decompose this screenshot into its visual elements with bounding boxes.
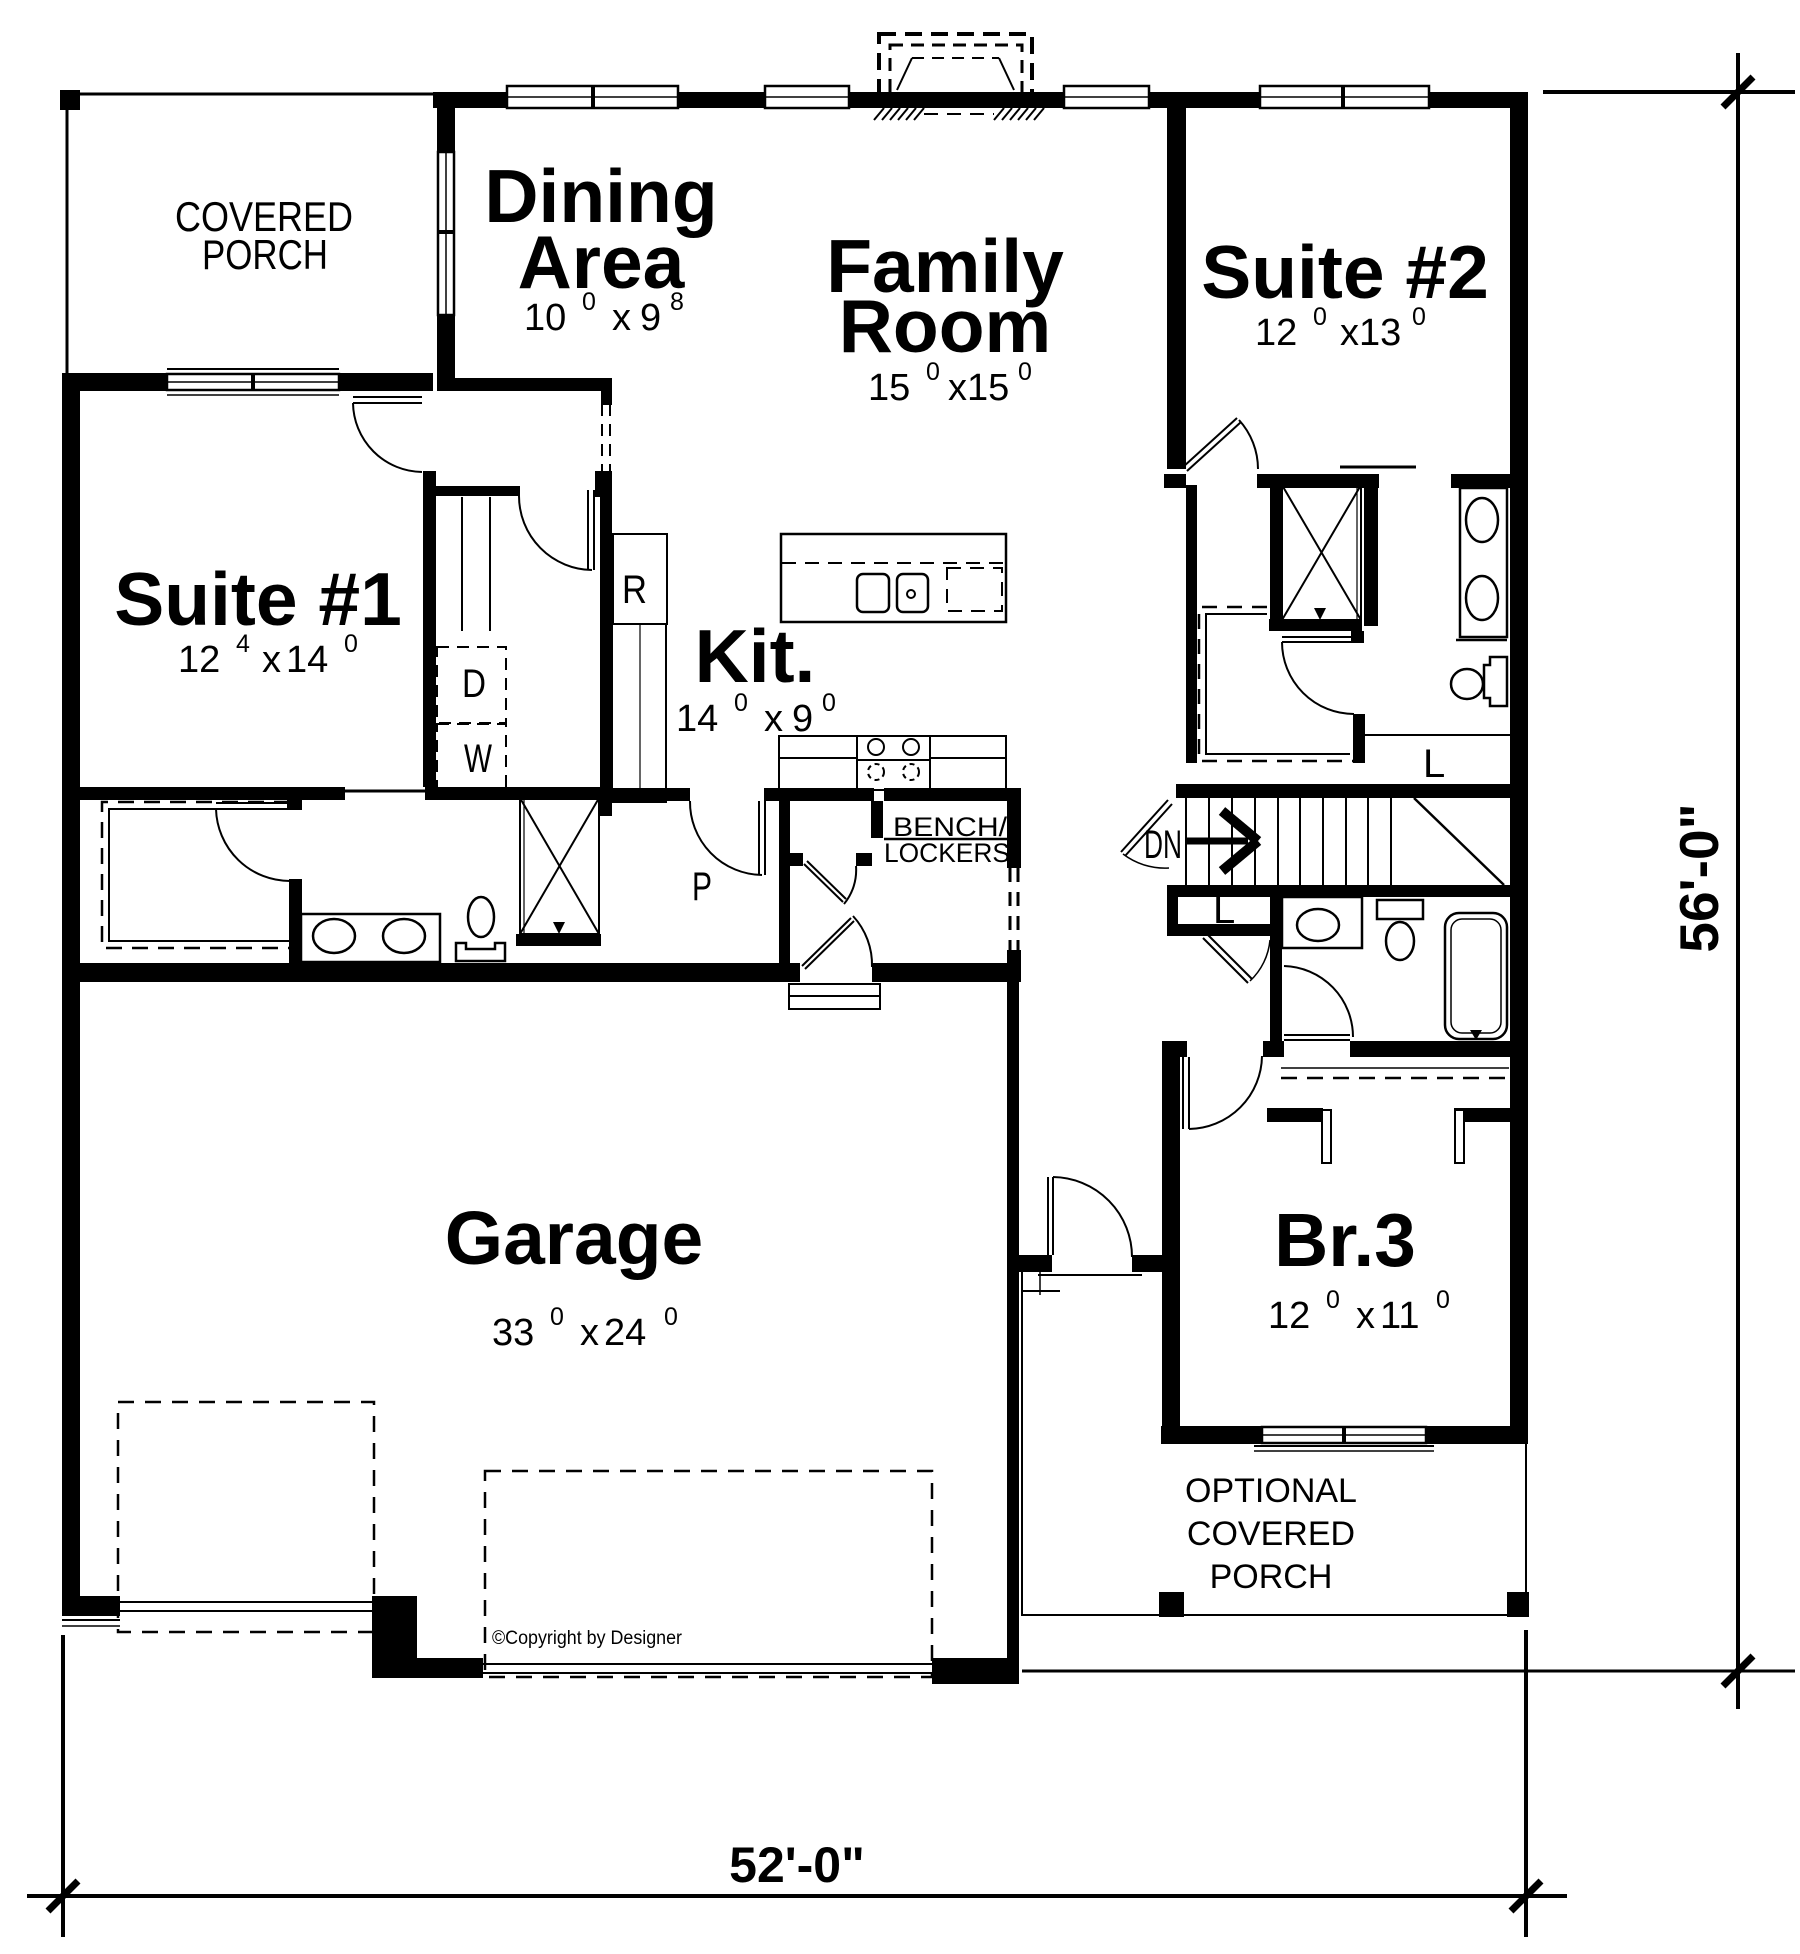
svg-text:12: 12 [1268, 1295, 1310, 1337]
svg-text:Kit.: Kit. [695, 614, 816, 698]
svg-text:0: 0 [1326, 1286, 1340, 1314]
svg-text:Room: Room [839, 284, 1051, 368]
svg-text:COVERED: COVERED [1187, 1515, 1355, 1553]
svg-text:14: 14 [286, 639, 328, 681]
svg-text:x: x [612, 297, 631, 339]
svg-text:Suite #2: Suite #2 [1201, 230, 1489, 314]
svg-text:0: 0 [344, 630, 358, 658]
svg-text:Area: Area [518, 220, 686, 304]
svg-text:8: 8 [670, 288, 684, 316]
svg-text:56'-0": 56'-0" [1668, 803, 1730, 952]
svg-text:0: 0 [582, 288, 596, 316]
svg-text:Br.3: Br.3 [1274, 1198, 1416, 1282]
svg-text:x: x [1356, 1295, 1375, 1337]
svg-text:x: x [580, 1312, 599, 1354]
svg-text:15: 15 [868, 367, 910, 409]
svg-text:x15: x15 [948, 367, 1009, 409]
svg-text:0: 0 [926, 358, 940, 386]
svg-text:L: L [1213, 888, 1235, 932]
svg-text:33: 33 [492, 1312, 534, 1354]
svg-text:OPTIONAL: OPTIONAL [1185, 1472, 1357, 1510]
svg-text:LOCKERS: LOCKERS [884, 838, 1010, 868]
svg-text:9: 9 [792, 698, 813, 740]
svg-text:12: 12 [1255, 312, 1297, 354]
svg-text:52'-0": 52'-0" [729, 1837, 865, 1893]
svg-text:x13: x13 [1340, 312, 1401, 354]
svg-text:x: x [262, 639, 281, 681]
svg-text:0: 0 [822, 689, 836, 717]
svg-text:24: 24 [604, 1312, 646, 1354]
svg-text:0: 0 [550, 1303, 564, 1331]
svg-text:PORCH: PORCH [1210, 1558, 1333, 1596]
svg-text:12: 12 [178, 639, 220, 681]
svg-text:11: 11 [1380, 1295, 1419, 1337]
svg-text:0: 0 [734, 689, 748, 717]
svg-text:9: 9 [640, 297, 661, 339]
svg-text:0: 0 [664, 1303, 678, 1331]
svg-text:0: 0 [1412, 303, 1426, 331]
svg-text:4: 4 [236, 630, 250, 658]
svg-text:PORCH: PORCH [202, 231, 328, 278]
svg-text:10: 10 [524, 297, 566, 339]
svg-text:x: x [764, 698, 783, 740]
svg-text:R: R [622, 568, 647, 612]
svg-text:0: 0 [1436, 1286, 1450, 1314]
svg-text:Garage: Garage [445, 1196, 703, 1280]
svg-text:P: P [692, 865, 712, 909]
svg-text:W: W [464, 737, 492, 781]
svg-text:0: 0 [1313, 303, 1327, 331]
svg-text:Suite #1: Suite #1 [114, 557, 402, 641]
svg-text:14: 14 [676, 698, 718, 740]
svg-text:D: D [462, 662, 486, 706]
svg-text:0: 0 [1018, 358, 1032, 386]
svg-text:L: L [1423, 742, 1445, 786]
svg-text:©Copyright by Designer: ©Copyright by Designer [492, 1628, 683, 1649]
